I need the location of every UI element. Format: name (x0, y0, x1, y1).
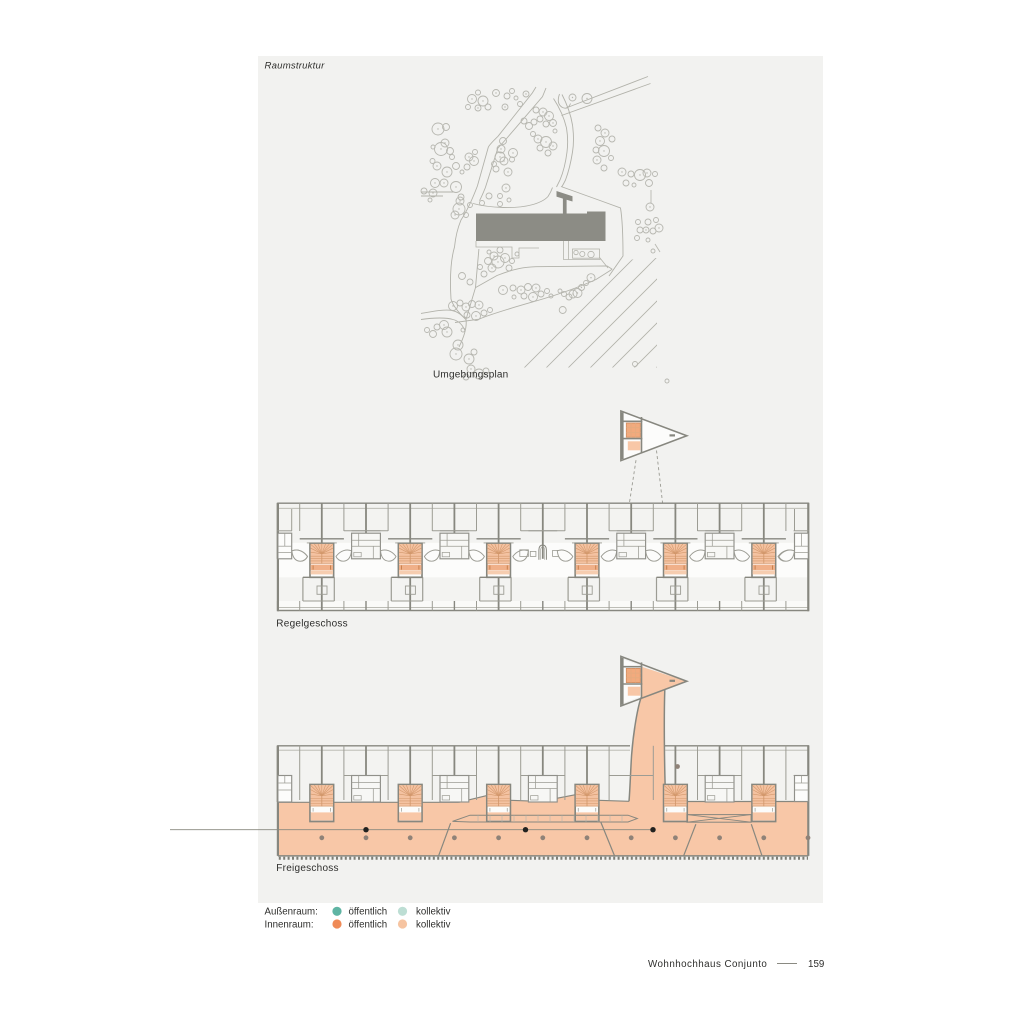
svg-text:Innenraum:: Innenraum: (265, 919, 314, 930)
svg-text:kollektiv: kollektiv (416, 919, 451, 930)
svg-text:Außenraum:: Außenraum: (265, 907, 318, 918)
svg-text:Freigeschoss: Freigeschoss (276, 863, 338, 874)
svg-text:159: 159 (808, 959, 824, 970)
svg-text:Wohnhochhaus Conjunto: Wohnhochhaus Conjunto (648, 959, 767, 970)
svg-text:öffentlich: öffentlich (349, 907, 388, 918)
svg-text:kollektiv: kollektiv (416, 907, 451, 918)
svg-text:Regelgeschoss: Regelgeschoss (276, 619, 348, 630)
svg-text:Umgebungsplan: Umgebungsplan (433, 370, 508, 381)
svg-text:öffentlich: öffentlich (349, 919, 388, 930)
svg-text:Raumstruktur: Raumstruktur (265, 61, 326, 72)
